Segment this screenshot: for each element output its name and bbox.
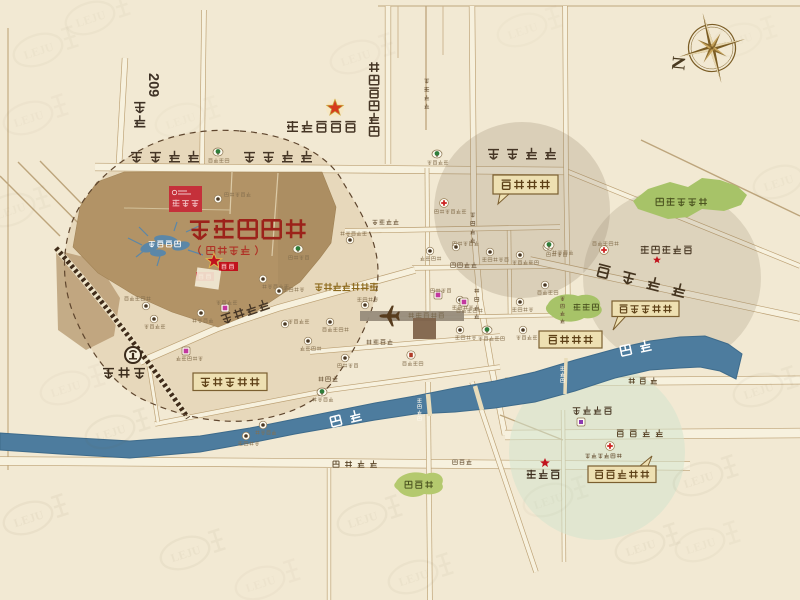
svg-text:209: 209 [145, 73, 161, 97]
svg-text:N: N [668, 55, 690, 71]
